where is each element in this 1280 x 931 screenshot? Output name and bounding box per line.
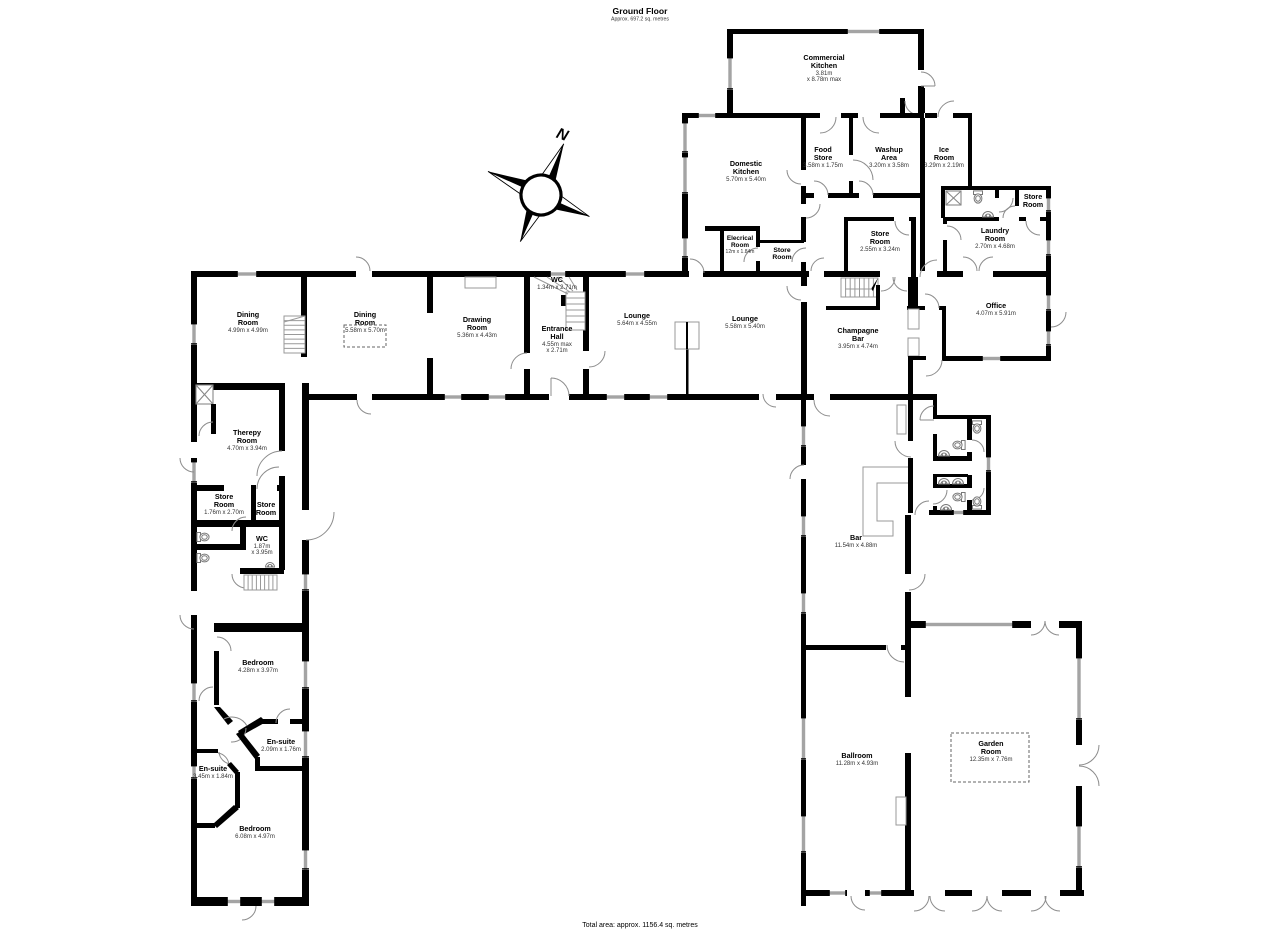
svg-text:5.64m x 4.55m: 5.64m x 4.55m — [617, 321, 657, 327]
svg-text:4.70m x 3.94m: 4.70m x 3.94m — [227, 446, 267, 452]
svg-text:x 3.95m: x 3.95m — [251, 550, 272, 556]
svg-text:12m x 1.84m: 12m x 1.84m — [726, 249, 755, 255]
svg-text:Elecrical: Elecrical — [727, 235, 754, 242]
svg-text:Room: Room — [731, 242, 749, 249]
svg-text:5.58m x 5.40m: 5.58m x 5.40m — [725, 324, 765, 330]
svg-text:Room: Room — [214, 500, 234, 509]
svg-text:Bedroom: Bedroom — [239, 824, 271, 833]
svg-text:5.36m x 4.43m: 5.36m x 4.43m — [457, 333, 497, 339]
svg-text:Lounge: Lounge — [624, 311, 650, 320]
svg-text:WC: WC — [551, 275, 563, 284]
svg-text:Total area: approx. 1156.4 sq.: Total area: approx. 1156.4 sq. metres — [582, 922, 698, 929]
svg-text:Area: Area — [881, 153, 898, 162]
svg-text:Room: Room — [256, 508, 276, 517]
svg-text:12.35m x 7.76m: 12.35m x 7.76m — [969, 757, 1012, 763]
svg-text:Room: Room — [981, 747, 1001, 756]
svg-text:Approx. 697.2 sq. metres: Approx. 697.2 sq. metres — [611, 17, 669, 23]
svg-text:Hall: Hall — [550, 332, 563, 341]
svg-text:Room: Room — [467, 323, 487, 332]
svg-text:Office: Office — [986, 301, 1006, 310]
svg-text:Room: Room — [237, 436, 257, 445]
svg-text:Room: Room — [238, 318, 258, 327]
svg-text:x 8.78m max: x 8.78m max — [807, 77, 841, 83]
svg-text:x 2.71m: x 2.71m — [546, 348, 567, 354]
svg-text:Lounge: Lounge — [732, 314, 758, 323]
svg-text:1.34m x 2.71m: 1.34m x 2.71m — [537, 285, 577, 291]
svg-text:En-suite: En-suite — [267, 737, 295, 746]
svg-text:3.20m x 3.58m: 3.20m x 3.58m — [869, 163, 909, 169]
svg-text:Bar: Bar — [852, 334, 864, 343]
svg-text:Store: Store — [773, 247, 791, 254]
svg-text:Bedroom: Bedroom — [242, 658, 274, 667]
svg-text:4.99m x 4.99m: 4.99m x 4.99m — [228, 328, 268, 334]
svg-text:1.76m x 2.70m: 1.76m x 2.70m — [204, 510, 244, 516]
svg-text:Room: Room — [355, 318, 375, 327]
svg-text:3.45m x 1.84m: 3.45m x 1.84m — [193, 774, 233, 780]
svg-text:Kitchen: Kitchen — [811, 61, 837, 70]
svg-text:5.70m x 5.40m: 5.70m x 5.40m — [726, 177, 766, 183]
svg-text:Store: Store — [814, 153, 832, 162]
svg-text:11.28m x 4.93m: 11.28m x 4.93m — [836, 761, 879, 767]
svg-text:2.55m x 3.24m: 2.55m x 3.24m — [860, 247, 900, 253]
svg-text:3.58m x 1.75m: 3.58m x 1.75m — [803, 163, 843, 169]
svg-text:3.95m x 4.74m: 3.95m x 4.74m — [838, 344, 878, 350]
svg-text:11.54m x 4.88m: 11.54m x 4.88m — [835, 543, 878, 549]
svg-text:3.29m x 2.19m: 3.29m x 2.19m — [924, 163, 964, 169]
svg-text:4.28m x 3.97m: 4.28m x 3.97m — [238, 668, 278, 674]
svg-text:WC: WC — [256, 534, 268, 543]
svg-text:Room: Room — [870, 237, 890, 246]
svg-text:Room: Room — [1023, 200, 1043, 209]
svg-text:5.58m x 5.70m: 5.58m x 5.70m — [345, 328, 385, 334]
svg-text:Room: Room — [772, 254, 791, 261]
svg-text:Ground Floor: Ground Floor — [613, 6, 669, 16]
svg-text:2.09m x 1.76m: 2.09m x 1.76m — [261, 747, 301, 753]
svg-text:Ballroom: Ballroom — [841, 751, 872, 760]
svg-text:6.08m x 4.97m: 6.08m x 4.97m — [235, 834, 275, 840]
svg-text:Room: Room — [985, 234, 1005, 243]
svg-text:Bar: Bar — [850, 533, 862, 542]
svg-text:Kitchen: Kitchen — [733, 167, 759, 176]
svg-text:En-suite: En-suite — [199, 764, 227, 773]
svg-text:4.07m x 5.91m: 4.07m x 5.91m — [976, 311, 1016, 317]
svg-text:2.70m x 4.68m: 2.70m x 4.68m — [975, 244, 1015, 250]
svg-text:Room: Room — [934, 153, 954, 162]
